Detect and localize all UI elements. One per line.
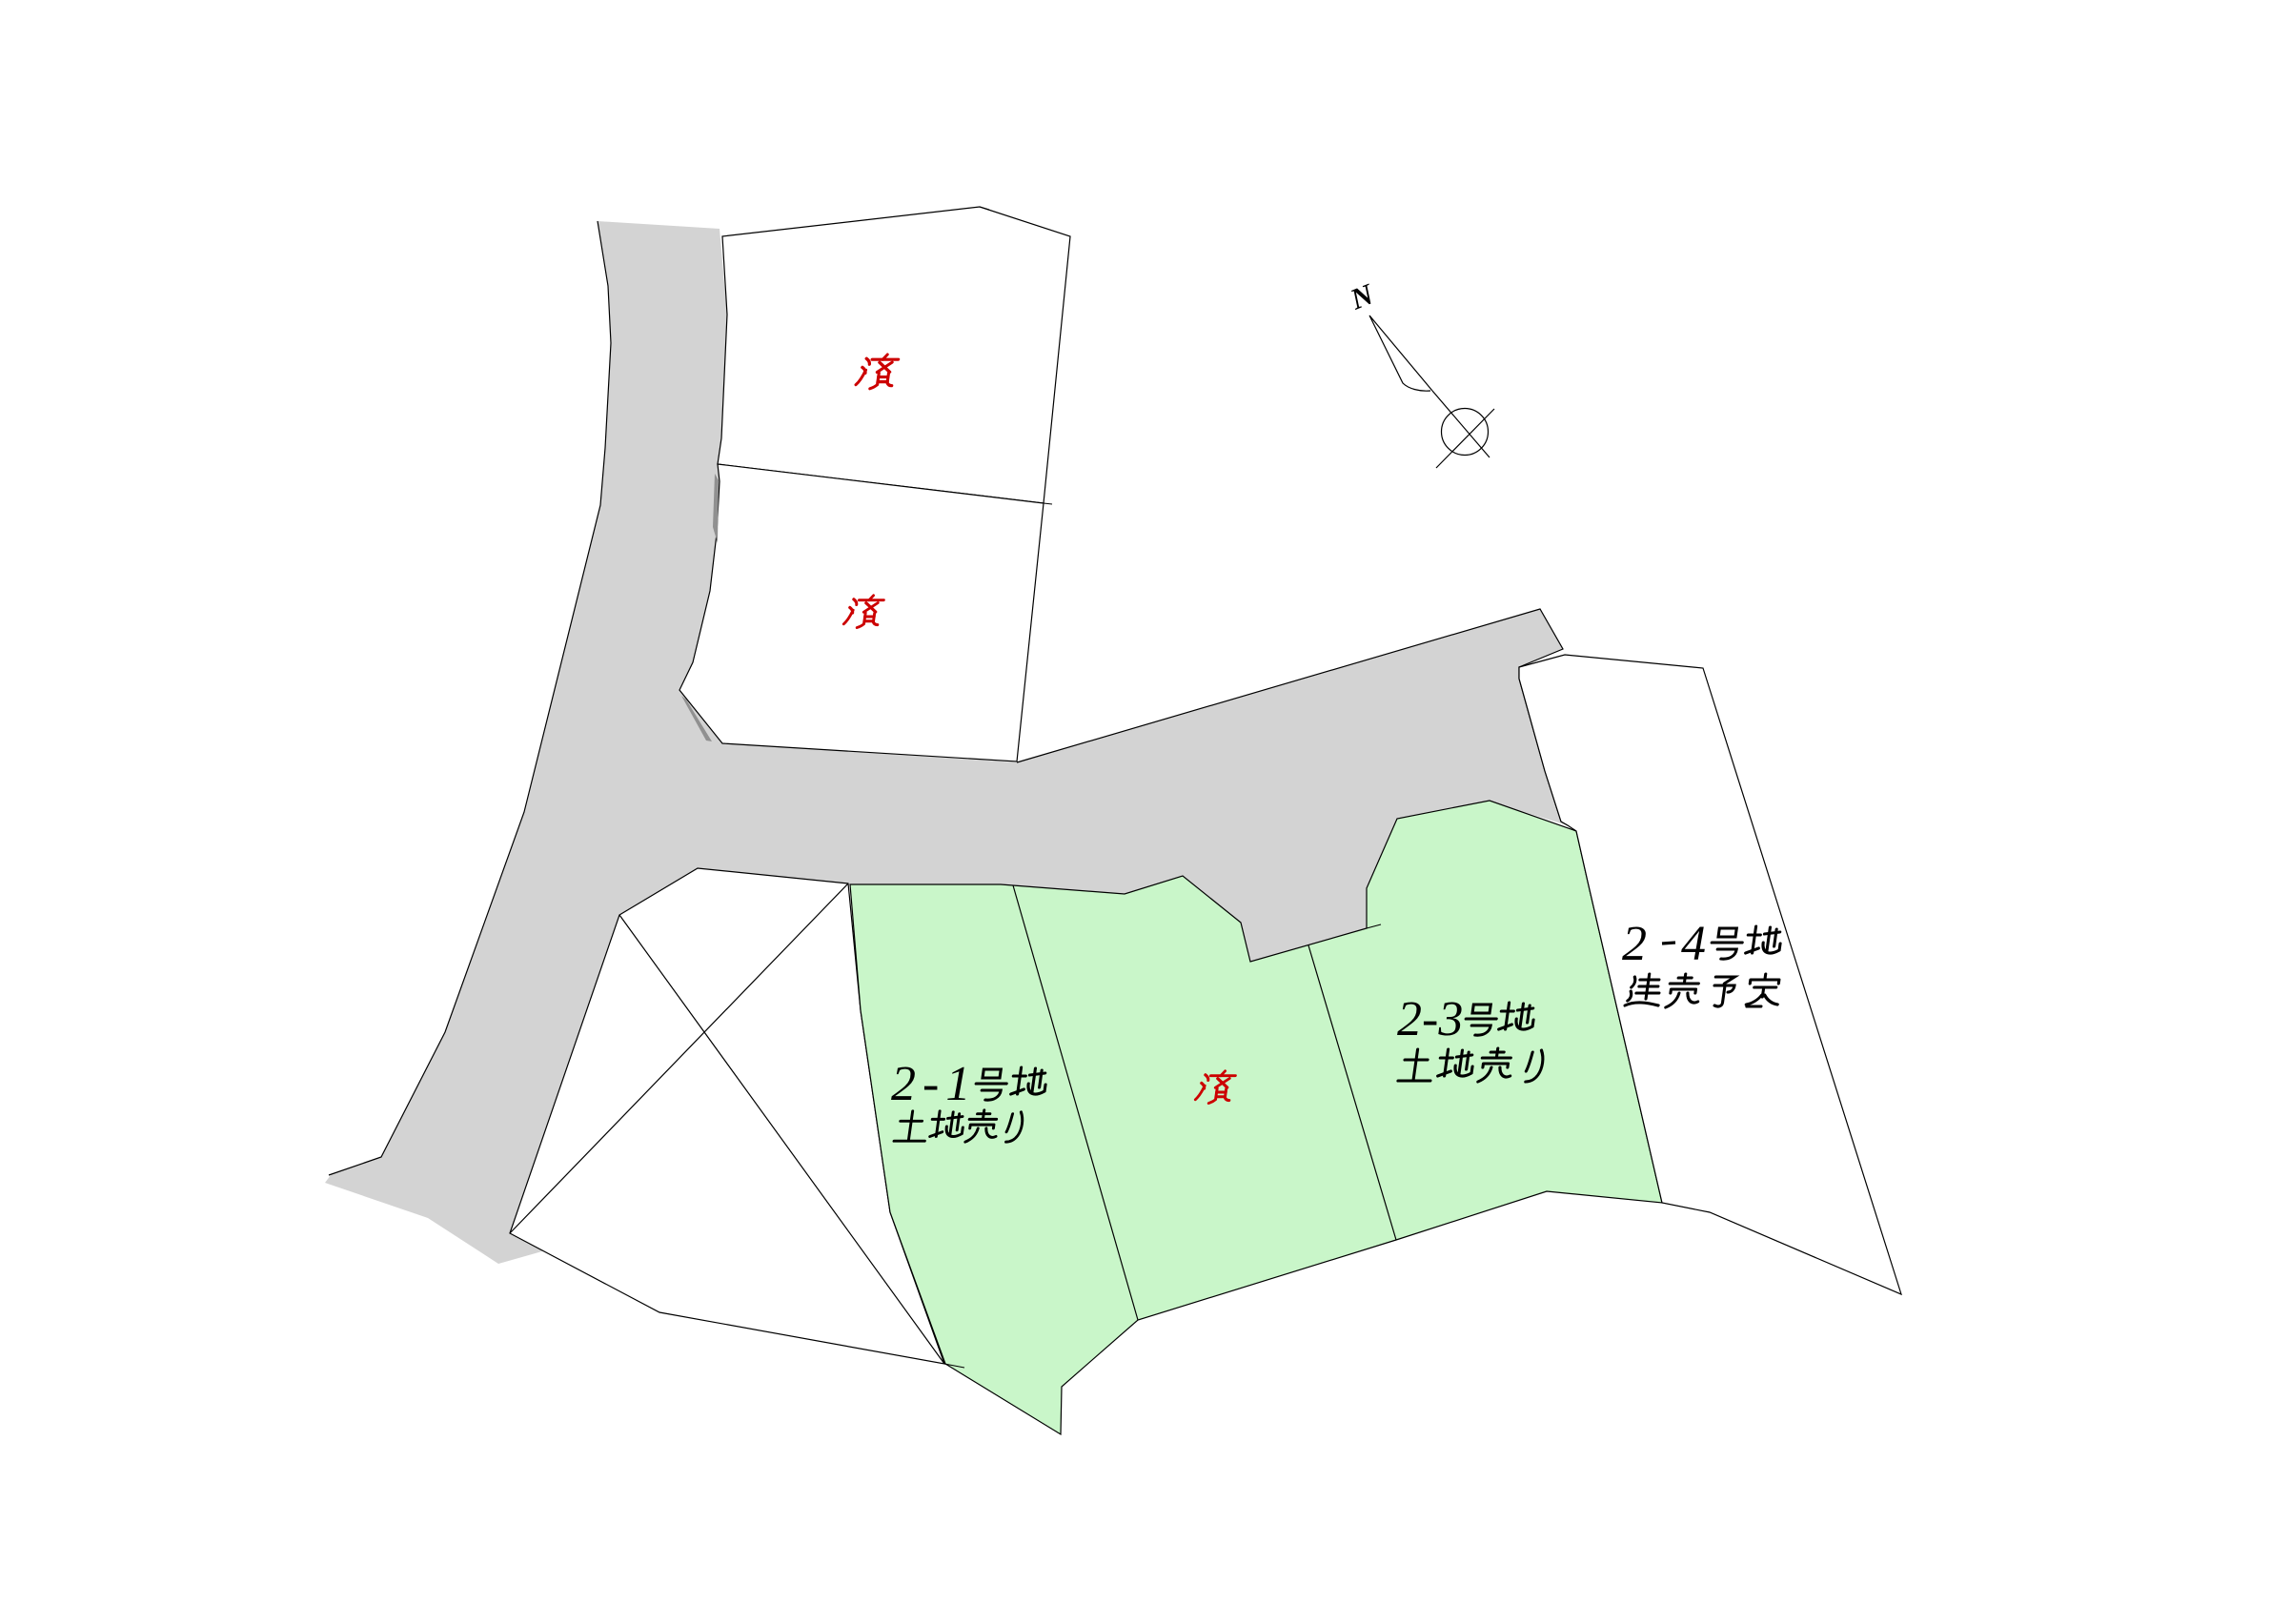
svg-text:2-3: 2-3	[1397, 992, 1463, 1046]
svg-text:2-1: 2-1	[891, 1057, 977, 1111]
svg-text:4: 4	[1681, 917, 1706, 971]
svg-text:2: 2	[1622, 917, 1647, 971]
